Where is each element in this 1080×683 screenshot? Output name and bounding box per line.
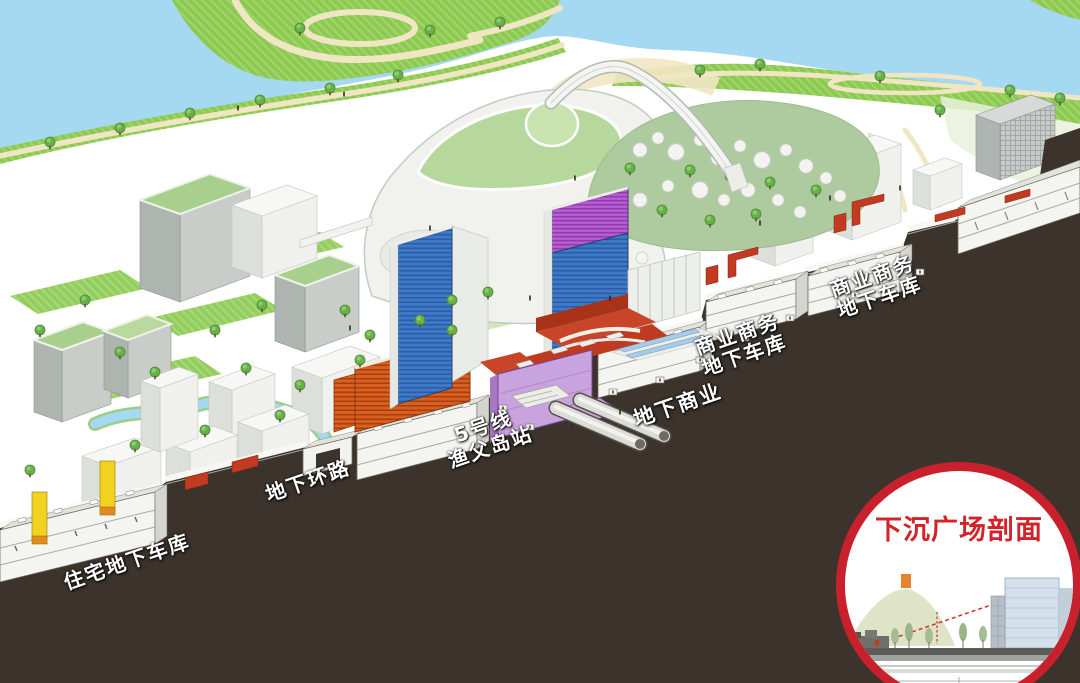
masterplan-illustration: 住宅地下车库 地下环路 5号线 渔父岛站 地下商业 商业商务 地下车库 商业商务… (0, 0, 1080, 683)
inset-ground (845, 648, 1073, 683)
hilltop-marker (901, 574, 911, 588)
blue-tower-1 (390, 226, 488, 409)
inset-section-drawing (845, 548, 1073, 683)
inset-title: 下沉广场剖面 (845, 517, 1073, 544)
